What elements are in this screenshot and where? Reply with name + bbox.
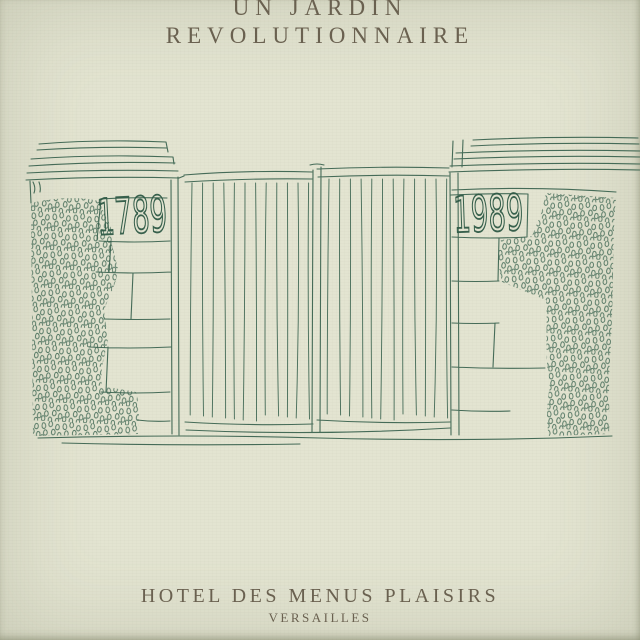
right-pillar-capital xyxy=(449,137,640,172)
footer-venue: HOTEL DES MENUS PLAISIRS xyxy=(0,585,640,607)
poster-footer: HOTEL DES MENUS PLAISIRS VERSAILLES xyxy=(0,585,640,627)
footer-city: VERSAILLES xyxy=(0,608,640,627)
poster-cover: UN JARDIN REVOLUTIONNAIRE xyxy=(0,0,640,640)
left-pillar-year-1789: 1789 xyxy=(96,185,169,247)
gate-slats-left-panel xyxy=(190,183,309,421)
gate-frame xyxy=(179,164,450,433)
gate-slats-right-panel xyxy=(327,179,447,420)
ground-line xyxy=(38,436,612,445)
gate-sketch-drawing: 1789 1989 xyxy=(0,0,640,640)
right-pillar-year-1989: 1989 xyxy=(452,184,524,245)
